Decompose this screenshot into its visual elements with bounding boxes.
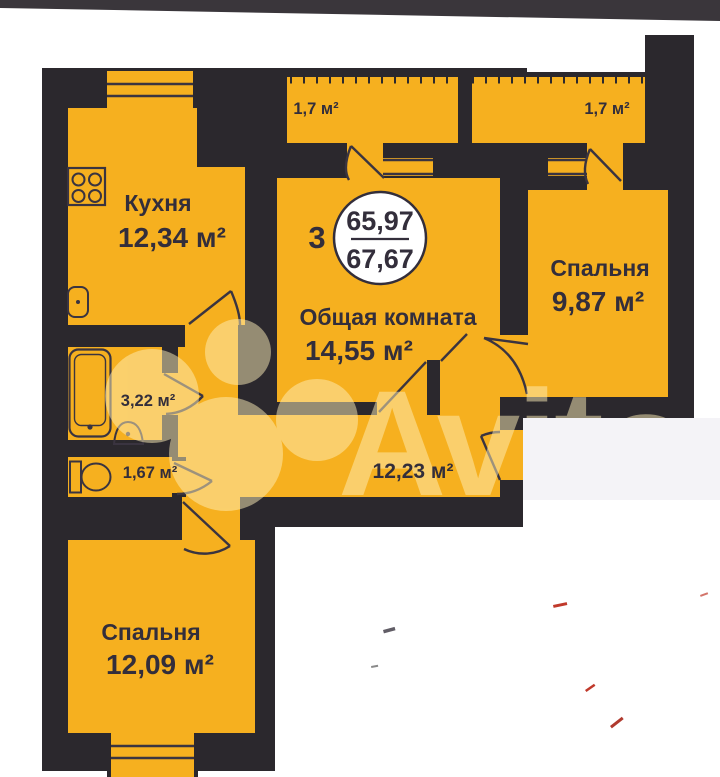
watermark-logo-circle (169, 397, 283, 511)
floor-plan-image: Avito 3 65,97 67,67 Кухня 12,34 м² 1,7 м… (0, 0, 720, 777)
total-area-value: 67,67 (346, 244, 414, 274)
living-area-value: 65,97 (346, 206, 414, 236)
bedroom-right-area: 9,87 м² (552, 286, 644, 317)
bedroom-bottom-label: Спальня (101, 619, 200, 645)
living-room-area: 14,55 м² (305, 335, 413, 366)
hallway-area: 12,23 м² (373, 460, 454, 483)
rooms-count-label: 3 (308, 220, 325, 255)
bedroom-right-label: Спальня (550, 255, 649, 281)
erased-region-white (275, 527, 523, 777)
living-room-label: Общая комната (299, 304, 476, 330)
bedroom-bottom-area: 12,09 м² (106, 649, 214, 680)
bedroom-bottom-window-bay (111, 733, 194, 777)
kitchen-window-opening (107, 71, 193, 108)
toilet-area: 1,67 м² (123, 464, 178, 482)
watermark-logo-circle (205, 319, 271, 385)
kitchen-area: 12,34 м² (118, 222, 226, 253)
balcony-right-area: 1,7 м² (584, 100, 630, 118)
balcony-left-area: 1,7 м² (293, 100, 339, 118)
floor-plan-svg: Avito 3 65,97 67,67 Кухня 12,34 м² 1,7 м… (0, 0, 720, 777)
kitchen-label: Кухня (124, 190, 191, 216)
bathroom-area: 3,22 м² (121, 392, 176, 410)
erased-region-white (523, 500, 720, 777)
